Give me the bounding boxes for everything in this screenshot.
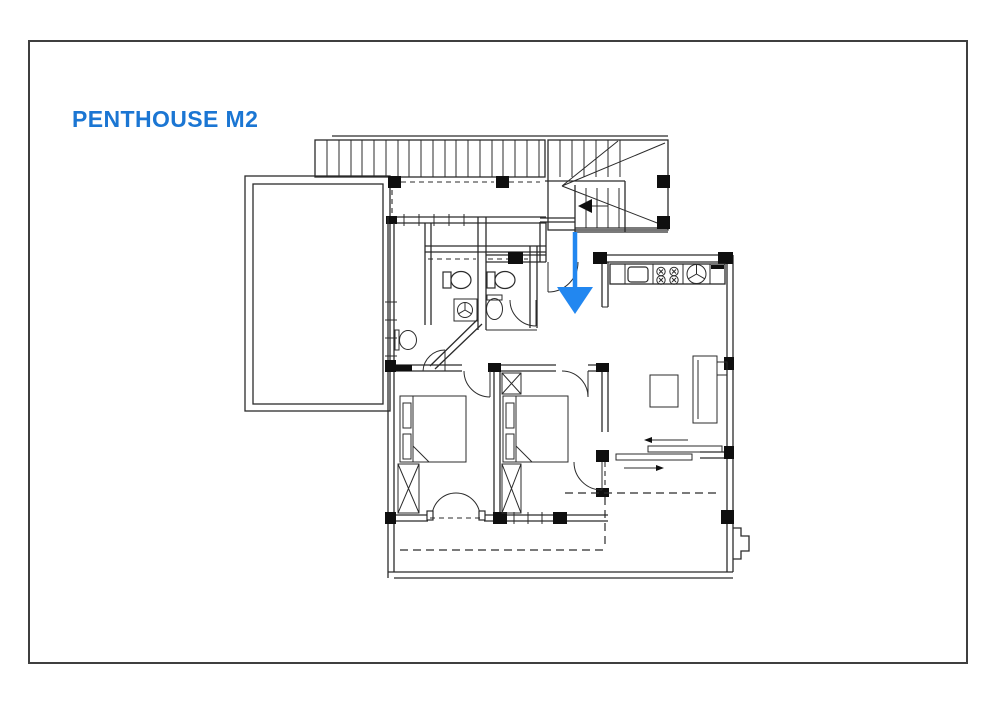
wardrobe-icon [398, 464, 419, 513]
side-terrace [245, 176, 390, 411]
bedroom-1 [398, 371, 490, 520]
door-swing [510, 300, 536, 326]
living-room [616, 356, 727, 471]
wc-bowl-icon [487, 295, 503, 320]
stove-burners-icon [657, 267, 678, 284]
corridor [386, 176, 546, 262]
floor-plan-drawing [0, 0, 1000, 707]
door-swing [464, 371, 490, 397]
door-swing [574, 462, 602, 490]
wall-notch [733, 528, 749, 559]
kitchen-sink-icon [628, 267, 648, 282]
sofa-icon [693, 356, 727, 423]
door-swing [423, 350, 445, 371]
door-swing [562, 371, 588, 397]
round-appliance-icon [687, 265, 706, 284]
corridor-window [404, 214, 464, 226]
bathroom-left [443, 272, 477, 322]
kitchen [610, 264, 725, 284]
bedroom-2 [502, 371, 602, 513]
stair-direction-arrow-icon [578, 199, 608, 213]
bedroom-window [500, 512, 556, 524]
wardrobe-icon [502, 373, 521, 513]
table-icon [650, 375, 678, 407]
structural-columns [385, 252, 734, 524]
french-doors-icon [427, 493, 485, 520]
shower-icon [454, 299, 477, 321]
toilet-icon [443, 272, 471, 289]
basin-icon [400, 331, 417, 350]
entrance-arrow [557, 232, 593, 314]
bathroom-right [487, 272, 537, 327]
sliding-door-icon [616, 437, 722, 471]
counter-hatch [711, 265, 724, 269]
toilet-icon [487, 272, 515, 289]
double-bed-icon [503, 396, 568, 462]
double-bed-icon [400, 396, 466, 462]
